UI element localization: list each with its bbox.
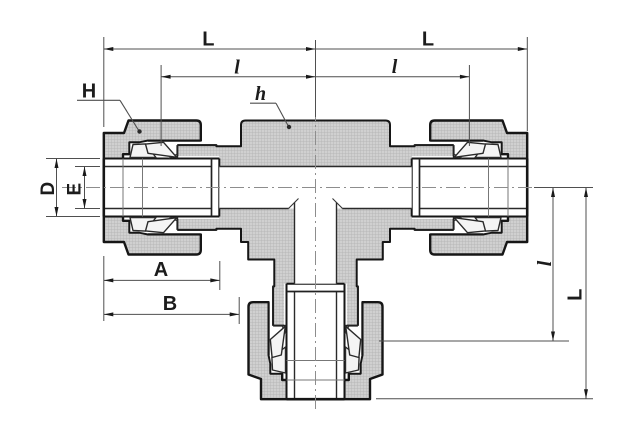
svg-text:L: L — [202, 29, 214, 51]
svg-text:B: B — [163, 293, 177, 315]
svg-text:l: l — [534, 260, 556, 266]
svg-text:H: H — [82, 81, 96, 103]
svg-text:l: l — [392, 56, 398, 78]
svg-text:l: l — [234, 57, 240, 79]
svg-text:L: L — [422, 29, 434, 51]
svg-text:A: A — [154, 259, 168, 281]
svg-text:L: L — [564, 289, 586, 301]
svg-text:E: E — [64, 183, 85, 196]
svg-text:D: D — [38, 182, 59, 196]
svg-text:h: h — [255, 83, 266, 105]
